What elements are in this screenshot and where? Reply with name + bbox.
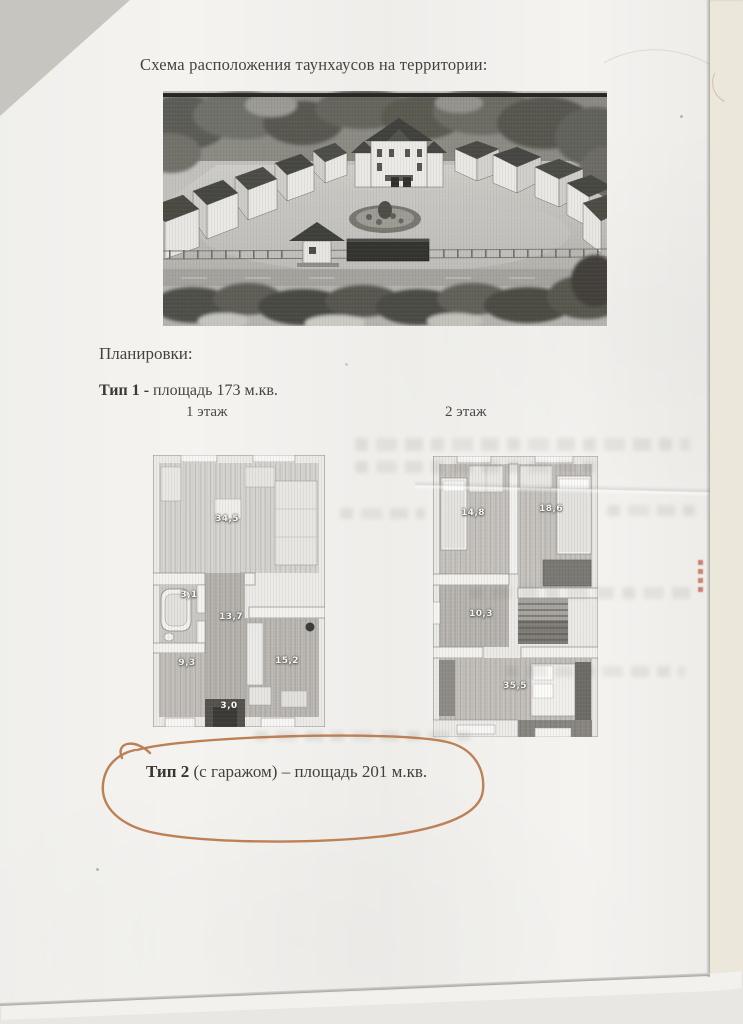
floorplan-floor1-graphic — [153, 455, 325, 727]
floor1-label: 1 этаж — [186, 404, 227, 421]
underlying-cream-sheet — [706, 0, 743, 985]
room-area-label: 18,6 — [539, 504, 563, 514]
site-plan-render-graphic — [163, 91, 607, 326]
dust-speck — [680, 115, 683, 118]
room-area-label: 35,5 — [503, 681, 527, 691]
plans-heading: Планировки: — [99, 344, 193, 364]
room-area-label: 15,2 — [275, 656, 299, 666]
dust-speck — [96, 868, 99, 871]
floor2-label: 2 этаж — [445, 404, 486, 421]
bleedthrough-text — [340, 508, 425, 519]
dark-wall-block — [347, 239, 429, 261]
page-title: Схема расположения таунхаусов на террито… — [140, 55, 580, 75]
site-aerial-render — [163, 91, 607, 326]
red-margin-marks — [698, 560, 703, 592]
paper-fold-edge — [0, 0, 133, 117]
dust-speck — [345, 363, 348, 366]
type1-label-rest: площадь 173 м.кв. — [149, 382, 278, 399]
room-area-label: 34,5 — [215, 514, 239, 524]
bleedthrough-text — [505, 666, 685, 677]
room-area-label: 9,3 — [178, 658, 195, 668]
bleedthrough-text — [470, 587, 695, 599]
scanned-page: Схема расположения таунхаусов на террито… — [0, 0, 743, 1024]
road — [163, 269, 607, 286]
room-area-label: 3,0 — [220, 701, 237, 711]
floorplan-floor1: 34,5 3,1 13,7 9,3 15,2 3,0 — [153, 455, 325, 727]
type1-label: Тип 1 - площадь 173 м.кв. — [99, 382, 278, 400]
bleedthrough-text — [355, 438, 690, 451]
bleedthrough-text — [607, 505, 695, 516]
pen-circle-annotation — [95, 728, 490, 850]
room-area-label: 14,8 — [461, 508, 485, 518]
room-area-label: 13,7 — [219, 612, 243, 622]
scanned-document-scene: Схема расположения таунхаусов на террито… — [0, 0, 743, 1024]
type1-label-bold: Тип 1 - — [99, 382, 149, 399]
paper-right-edge — [706, 0, 710, 980]
room-area-label: 10,3 — [469, 609, 493, 619]
room-area-label: 3,1 — [180, 590, 197, 600]
bleedthrough-text — [355, 461, 595, 473]
